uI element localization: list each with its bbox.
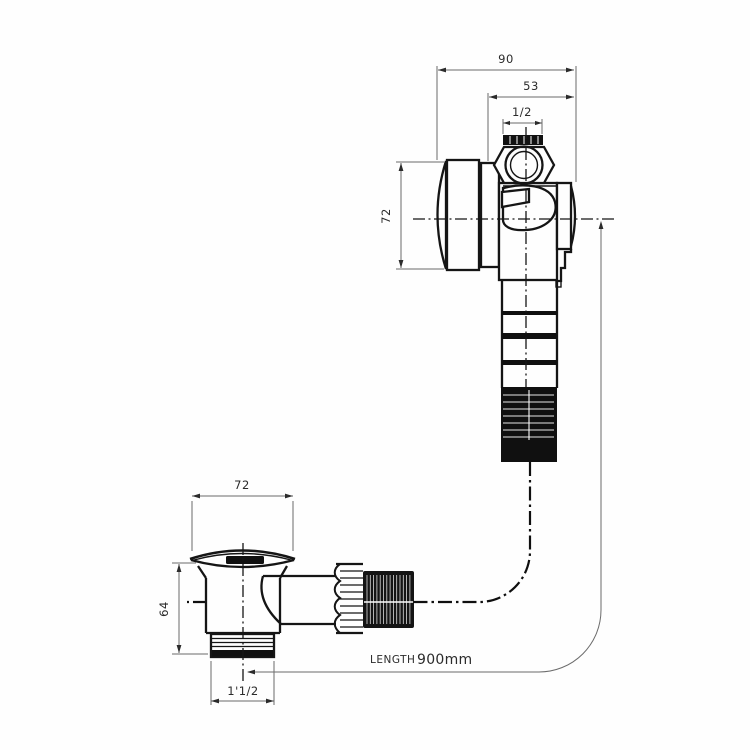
dim-53-text: 53 — [523, 79, 539, 93]
dimension-64: 64 — [157, 563, 208, 654]
dim-72-valve-text: 72 — [379, 208, 393, 224]
dim-90-text: 90 — [498, 52, 514, 66]
pipe-joint-1 — [502, 311, 557, 315]
dimension-inlet-half-inch: 1/2 — [503, 105, 542, 134]
waste-assembly — [190, 551, 363, 658]
valve-right-steps — [557, 249, 571, 281]
valve-right-block — [557, 183, 571, 249]
hose-connector — [501, 387, 557, 462]
hex-nut — [494, 147, 554, 183]
drawing-sheet: 90 53 1/2 72 72 64 1'1/2 — [0, 0, 750, 750]
inlet-thread-stub — [503, 135, 543, 145]
valve-cylinder-small — [481, 163, 499, 267]
hose-length-label: LENGTH — [370, 654, 415, 666]
plug-cap-shadow-band — [226, 556, 264, 564]
male-thread — [363, 571, 414, 628]
hose-length-value: 900mm — [417, 652, 473, 668]
valve-end-cap — [438, 161, 447, 269]
dim-64-text: 64 — [157, 601, 171, 617]
pipe-joint-2 — [502, 333, 557, 339]
pipe-joint-3 — [502, 360, 557, 365]
dim-half-text: 1/2 — [512, 105, 532, 119]
dimension-72-plug: 72 — [192, 478, 293, 551]
dim-one-and-half-text: 1'1/2 — [227, 684, 259, 698]
technical-drawing: 90 53 1/2 72 72 64 1'1/2 — [0, 0, 750, 750]
valve-cylinder-large — [447, 160, 479, 270]
dimension-one-and-half-inch: 1'1/2 — [211, 661, 274, 705]
overflow-filler-valve — [438, 135, 576, 388]
dim-72-plug-text: 72 — [234, 478, 250, 492]
waste-pipe-fill — [265, 578, 336, 623]
dimension-72-valve: 72 — [379, 162, 444, 269]
